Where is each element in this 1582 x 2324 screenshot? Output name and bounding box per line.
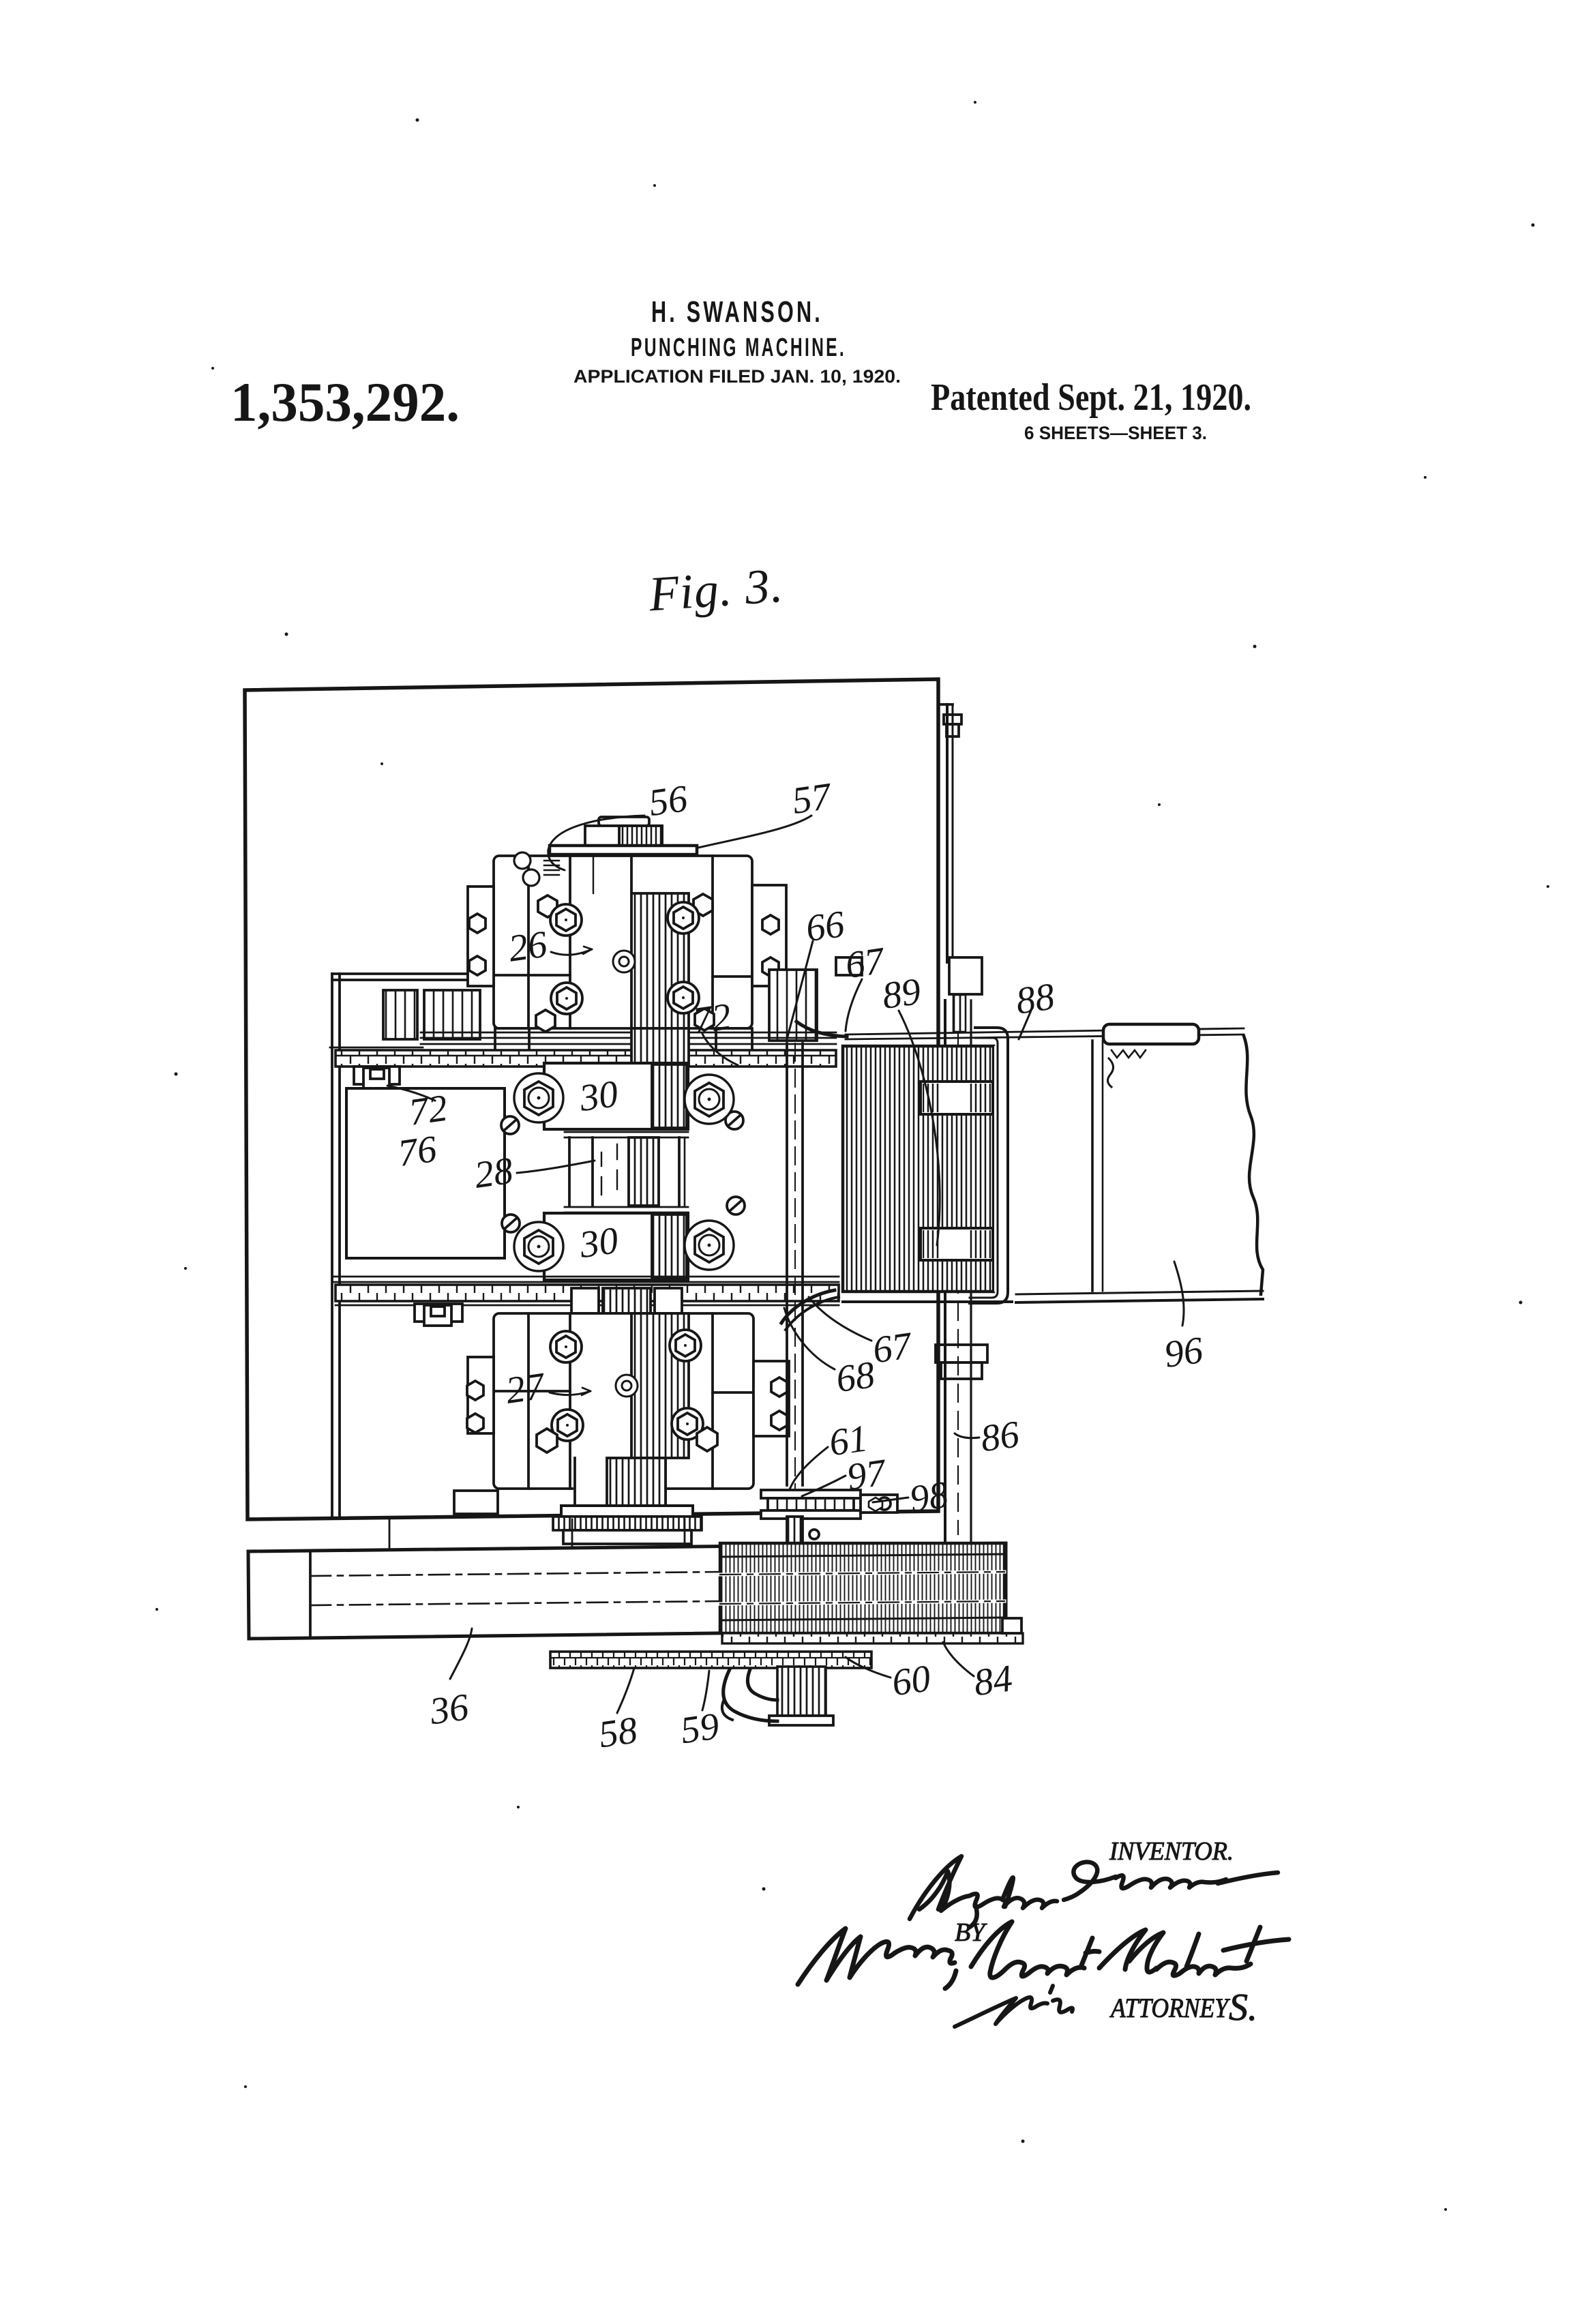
svg-text:59: 59 — [678, 1705, 721, 1752]
svg-text:26: 26 — [506, 923, 550, 970]
svg-text:Fig. 3.: Fig. 3. — [646, 558, 784, 622]
svg-text:S.: S. — [1229, 1986, 1257, 2029]
svg-text:58: 58 — [596, 1709, 640, 1756]
svg-text:Patented Sept. 21, 1920.: Patented Sept. 21, 1920. — [931, 376, 1251, 419]
svg-text:BY: BY — [955, 1918, 987, 1947]
svg-text:1,353,292.: 1,353,292. — [230, 371, 460, 433]
svg-text:66: 66 — [803, 903, 847, 950]
svg-text:89: 89 — [880, 970, 923, 1017]
svg-text:86: 86 — [978, 1413, 1021, 1460]
svg-text:68: 68 — [833, 1354, 877, 1401]
svg-text:60: 60 — [889, 1657, 933, 1704]
svg-text:96: 96 — [1162, 1329, 1206, 1376]
svg-text:84: 84 — [971, 1657, 1015, 1704]
svg-text:76: 76 — [395, 1128, 439, 1175]
svg-text:INVENTOR.: INVENTOR. — [1109, 1837, 1234, 1866]
svg-text:6 SHEETS—SHEET 3.: 6 SHEETS—SHEET 3. — [1024, 423, 1207, 443]
svg-text:97: 97 — [844, 1451, 889, 1498]
svg-text:ATTORNEY: ATTORNEY — [1109, 1993, 1230, 2023]
svg-text:98: 98 — [907, 1474, 951, 1521]
svg-text:H. SWANSON.: H. SWANSON. — [651, 295, 823, 329]
svg-text:88: 88 — [1013, 975, 1057, 1022]
svg-text:30: 30 — [576, 1073, 621, 1120]
svg-text:28: 28 — [472, 1150, 516, 1197]
svg-text:36: 36 — [427, 1686, 471, 1733]
svg-text:67: 67 — [870, 1324, 915, 1371]
svg-text:72: 72 — [406, 1087, 450, 1134]
svg-text:56: 56 — [646, 777, 690, 824]
svg-text:PUNCHING MACHINE.: PUNCHING MACHINE. — [631, 333, 846, 362]
svg-text:27: 27 — [503, 1365, 548, 1412]
svg-text:72: 72 — [690, 996, 734, 1043]
svg-text:30: 30 — [576, 1219, 621, 1266]
svg-text:APPLICATION FILED JAN. 10, 192: APPLICATION FILED JAN. 10, 1920. — [573, 366, 901, 387]
